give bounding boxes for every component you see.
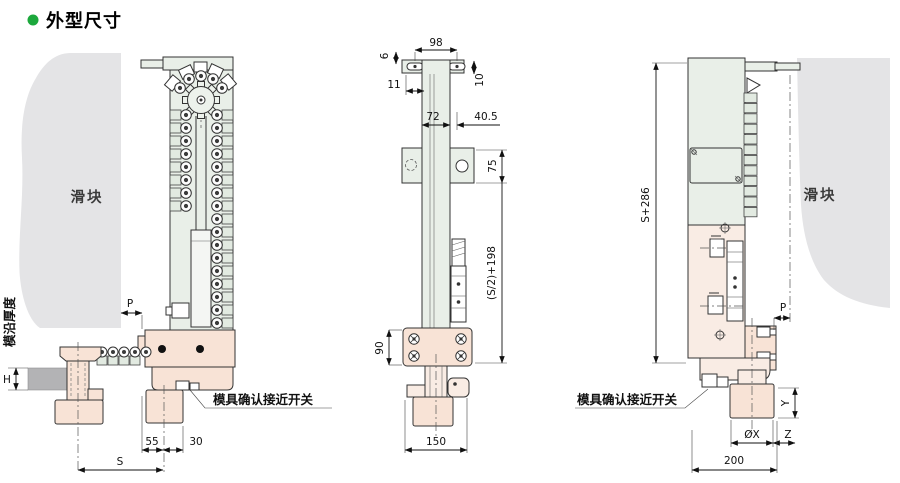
dim-10: 10 — [474, 73, 486, 86]
dim-s2-198: (S/2)+198 — [486, 246, 498, 300]
dim-p-left: P — [127, 298, 133, 310]
slide-block-left-label: 滑块 — [71, 189, 104, 206]
die-edge-thickness-label: 模沿厚度 — [2, 297, 17, 348]
proximity-switch-right — [702, 374, 717, 387]
dim-11: 11 — [387, 79, 400, 91]
column-side — [688, 58, 745, 225]
switch-rail — [451, 239, 466, 322]
foot-block — [146, 390, 183, 423]
chain-hook — [747, 78, 760, 93]
dim-90: 90 — [374, 341, 386, 354]
dim-6: 6 — [379, 52, 391, 59]
dim-55: 55 — [145, 436, 158, 448]
dim-ox: ØX — [744, 429, 759, 441]
dim-200: 200 — [724, 455, 744, 467]
dim-30: 30 — [189, 436, 202, 448]
dim-75: 75 — [487, 159, 499, 172]
dim-98: 98 — [429, 37, 442, 49]
dim-s-286: S+286 — [640, 187, 652, 223]
clamp-foot — [55, 400, 103, 424]
slide-block-right-label: 滑块 — [804, 187, 837, 204]
left-view: 滑块 — [2, 53, 332, 472]
dim-y: Y — [780, 399, 792, 407]
middle-view: 98 6 10 11 72 40.5 75 (S/2)+198 90 — [374, 37, 507, 453]
dimension-drawing-page: 外型尺寸 滑块 — [0, 0, 900, 483]
access-plate — [690, 148, 742, 183]
proximity-switch-left — [176, 381, 189, 390]
guide-column — [422, 60, 450, 330]
bullet-icon — [28, 15, 39, 26]
dim-p-right: P — [780, 302, 786, 314]
switch-label-left: 模具确认接近开关 — [213, 392, 314, 407]
chain-right-column — [212, 110, 233, 329]
page-header: 外型尺寸 — [28, 10, 123, 32]
slide-block-right — [797, 58, 890, 308]
chain-stack — [744, 93, 757, 217]
foot-block-front — [413, 397, 453, 426]
switch-label-right: 模具确认接近开关 — [577, 392, 678, 407]
base-body-left-view — [138, 330, 235, 423]
dim-150: 150 — [426, 436, 446, 448]
bracket-left — [402, 148, 422, 183]
dimension-drawing: 外型尺寸 滑块 — [0, 0, 900, 483]
dim-h: H — [3, 374, 11, 386]
dim-z: Z — [784, 429, 791, 441]
die-edge-bar — [28, 368, 68, 390]
dim-40-5: 40.5 — [474, 111, 497, 123]
right-view: 滑块 — [575, 58, 890, 473]
dim-72: 72 — [426, 111, 439, 123]
clamp-assembly — [28, 347, 151, 424]
dim-s: S — [117, 456, 124, 468]
page-title: 外型尺寸 — [46, 10, 122, 32]
